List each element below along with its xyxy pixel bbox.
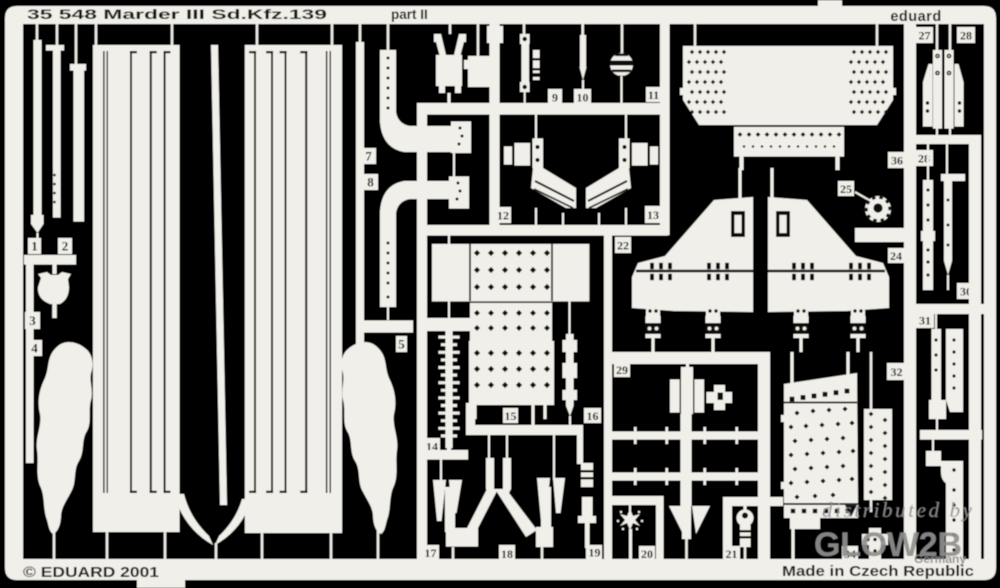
svg-text:28: 28 — [960, 28, 972, 42]
svg-text:15: 15 — [505, 409, 517, 423]
svg-text:35 548 Marder III Sd.Kfz.139: 35 548 Marder III Sd.Kfz.139 — [27, 7, 327, 22]
svg-text:11: 11 — [648, 88, 659, 102]
svg-text:19: 19 — [589, 545, 601, 559]
svg-text:17: 17 — [425, 546, 437, 560]
svg-text:8: 8 — [367, 175, 374, 190]
svg-text:20: 20 — [641, 547, 653, 561]
svg-text:4: 4 — [31, 341, 38, 356]
svg-text:18: 18 — [501, 547, 513, 561]
svg-text:12: 12 — [497, 208, 509, 222]
svg-text:29: 29 — [616, 363, 628, 377]
svg-text:eduard: eduard — [890, 9, 941, 25]
svg-text:24: 24 — [890, 249, 902, 263]
svg-text:Made in Czech Republic: Made in Czech Republic — [782, 564, 974, 580]
svg-text:distributed by: distributed by — [822, 498, 973, 522]
svg-text:1: 1 — [31, 239, 38, 254]
svg-text:36: 36 — [891, 153, 903, 167]
svg-text:16: 16 — [587, 409, 599, 423]
svg-text:31: 31 — [919, 313, 931, 327]
svg-text:32: 32 — [891, 365, 903, 379]
svg-text:© EDUARD 2001: © EDUARD 2001 — [23, 565, 159, 581]
svg-text:part II: part II — [391, 7, 428, 22]
svg-text:2: 2 — [62, 239, 69, 254]
svg-text:25: 25 — [840, 182, 852, 196]
svg-text:7: 7 — [365, 149, 372, 164]
svg-text:3: 3 — [29, 313, 36, 328]
svg-text:10: 10 — [577, 90, 589, 104]
svg-text:5: 5 — [398, 337, 405, 352]
svg-text:21: 21 — [726, 547, 738, 561]
svg-text:13: 13 — [647, 208, 659, 222]
svg-text:Germany: Germany — [914, 552, 966, 566]
svg-text:27: 27 — [919, 28, 931, 42]
svg-text:9: 9 — [552, 90, 558, 104]
svg-text:22: 22 — [617, 238, 629, 252]
